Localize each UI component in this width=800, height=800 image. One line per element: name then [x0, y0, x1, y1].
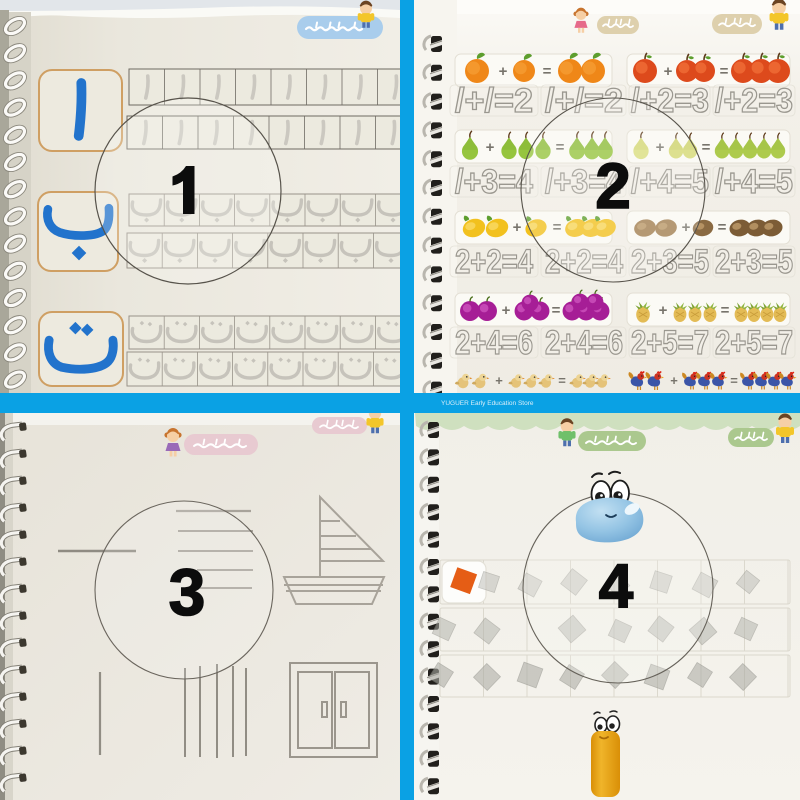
- svg-text:=: =: [702, 139, 711, 156]
- svg-text:+: +: [499, 63, 508, 80]
- svg-text:2+5=7: 2+5=7: [715, 324, 793, 362]
- svg-text:2+4=6: 2+4=6: [455, 324, 533, 362]
- svg-text:=: =: [730, 373, 738, 388]
- svg-text:+: +: [513, 219, 522, 236]
- svg-text:4: 4: [599, 552, 634, 621]
- svg-text:YUGUER Early Education Store: YUGUER Early Education Store: [441, 400, 534, 407]
- svg-text:3: 3: [169, 555, 206, 629]
- svg-text:+: +: [495, 373, 503, 388]
- svg-text:2+5=7: 2+5=7: [631, 324, 709, 362]
- svg-text:=: =: [558, 373, 566, 388]
- svg-text:/+/=2: /+/=2: [455, 82, 533, 120]
- svg-text:=: =: [543, 63, 552, 80]
- svg-text:2+3=5: 2+3=5: [715, 243, 793, 281]
- svg-text:=: =: [720, 63, 729, 80]
- svg-text:=: =: [552, 302, 561, 319]
- svg-text:/+2=3: /+2=3: [715, 82, 793, 120]
- svg-text:=: =: [721, 302, 730, 319]
- svg-text:+: +: [502, 302, 511, 319]
- svg-text:+: +: [659, 302, 668, 319]
- svg-text:2+4=6: 2+4=6: [545, 324, 623, 362]
- svg-text:/+4=5: /+4=5: [715, 163, 793, 201]
- svg-text:2: 2: [595, 150, 631, 222]
- svg-text:+: +: [664, 63, 673, 80]
- svg-text:+: +: [670, 373, 678, 388]
- svg-text:+: +: [486, 139, 495, 156]
- svg-text:2+2=4: 2+2=4: [455, 243, 533, 281]
- svg-text:=: =: [718, 219, 727, 236]
